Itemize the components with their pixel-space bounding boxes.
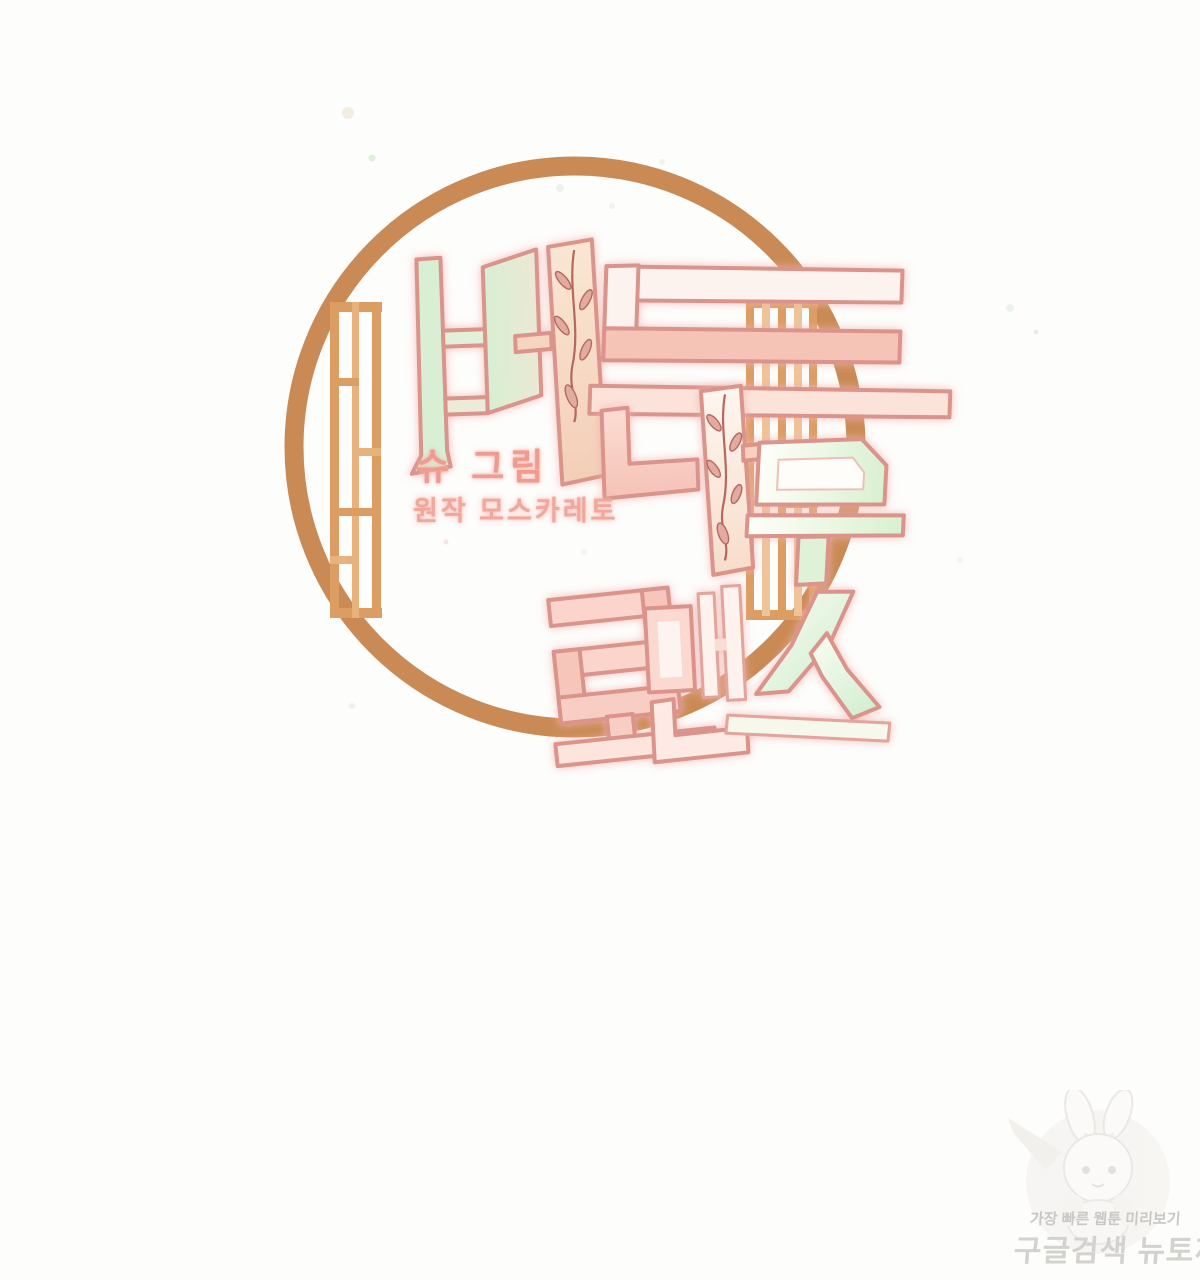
watermark: 가장 빠른 웹툰 미리보기 구글검색 뉴토끼 [1000, 1090, 1196, 1276]
title-line3 [540, 580, 903, 766]
watermark-brand: 구글검색 뉴토끼 [1012, 1226, 1200, 1270]
credit-artist: 슈 그림 [416, 438, 549, 490]
window-lattice-left [330, 302, 382, 618]
credit-original: 원작 모스카레토 [413, 489, 618, 528]
syllable-deu [589, 260, 954, 426]
syllable-maen [644, 586, 749, 763]
title-page: 슈 그림 원작 모스카레토 가장 빠른 웹툰 미리보기 구글검색 뉴토끼 [0, 0, 1200, 1280]
title-artwork [0, 0, 1200, 1280]
